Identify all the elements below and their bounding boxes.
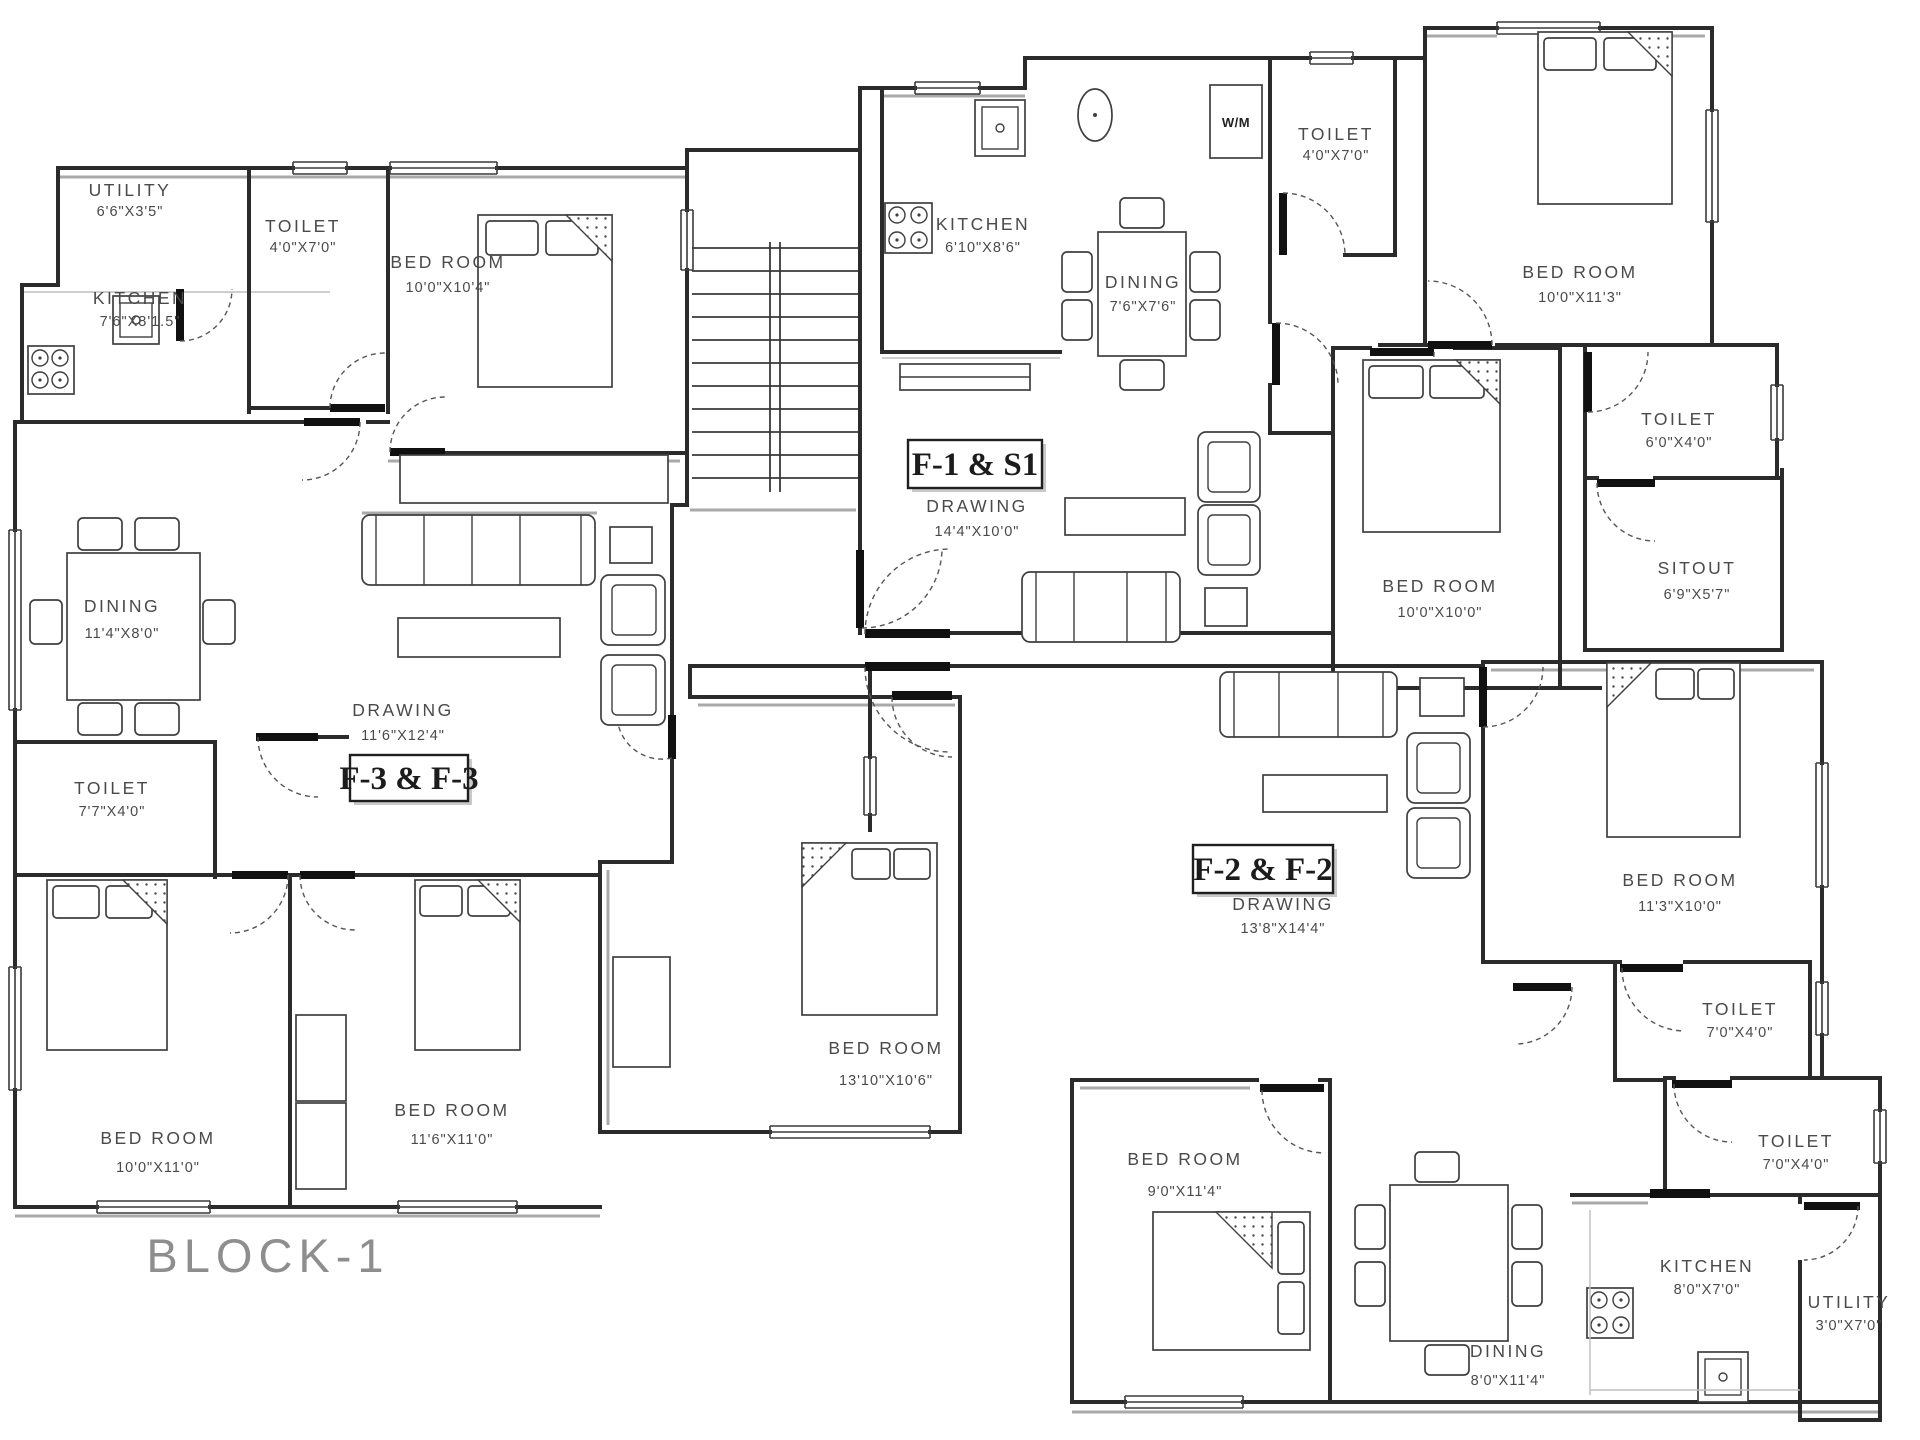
room-dims-drawing-f1: 14'4"X10'0" [935,524,1020,540]
room-dims-bedroom-f2-bm: 13'10"X10'6" [839,1073,933,1089]
stove-icon [1587,1288,1633,1338]
room-dims-toilet-f2-2: 7'0"X4'0" [1763,1157,1830,1173]
bed-icon [1607,663,1740,837]
door [1260,1084,1325,1153]
door [1650,1189,1710,1198]
unit-plate-f1: F-1 & S1 [908,440,1046,492]
cabinet-icon [400,455,668,503]
window [390,162,497,174]
door [1672,1080,1732,1142]
unit-label-f3: F-3 & F-3 [339,761,478,797]
room-label-toilet-f2-2: TOILET [1758,1131,1834,1151]
window [1706,110,1718,222]
stove-icon [28,346,74,394]
door [1279,193,1345,255]
room-label-bedroom-f2-r: BED ROOM [1622,870,1737,890]
room-dims-drawing-f3: 11'6"X12'4" [361,728,445,744]
door [1620,964,1685,1031]
bed-icon [802,843,937,1015]
floor-plan: UTILITY 6'6"X3'5" TOILET 4'0"X7'0" BED R… [0,0,1920,1440]
bed-icon [47,880,167,1050]
room-dims-bedroom-f2-b: 9'0"X11'4" [1148,1184,1223,1200]
door [230,871,288,933]
furniture [28,32,1800,1402]
room-label-wm: W/M [1222,115,1250,130]
sofa-icon [1407,733,1470,803]
unit-label-f1: F-1 & S1 [912,447,1039,483]
window [1771,385,1783,440]
room-label-utility-f3: UTILITY [89,180,172,200]
door [390,397,445,456]
room-label-dining-f2: DINING [1470,1341,1546,1361]
door [302,418,360,480]
sofa-icon [601,655,665,725]
room-dims-bedroom-f2-r: 11'3"X10'0" [1638,899,1722,915]
room-label-bedroom-f3-bm: BED ROOM [394,1100,509,1120]
room-label-utility-f2: UTILITY [1808,1292,1891,1312]
wardrobe-icon [613,957,670,1067]
stove-icon [885,203,932,253]
room-dims-bedroom-f3-bm: 11'6"X11'0" [411,1132,494,1148]
room-label-bedroom-f3-top: BED ROOM [390,252,505,272]
window [1816,763,1828,887]
tv-cabinet-icon [1065,498,1185,535]
room-dims-toilet-f1: 4'0"X7'0" [1303,148,1370,164]
room-dims-bedroom-f3-bl: 10'0"X11'0" [116,1160,200,1176]
bed-icon [1153,1212,1310,1350]
door [856,548,942,628]
room-label-bedroom-f1-tr: BED ROOM [1522,262,1637,282]
room-dims-kitchen-f2: 8'0"X7'0" [1674,1282,1741,1298]
window [9,967,21,1090]
room-dims-kitchen-f3: 7'6"X8'1.5" [100,314,181,330]
door [1272,323,1338,385]
window [1125,1396,1243,1408]
sofa-icon [1198,505,1260,575]
room-label-bedroom-f1-m: BED ROOM [1382,576,1497,596]
room-label-bedroom-f3-bl: BED ROOM [100,1128,215,1148]
unit-plate-f3: F-3 & F-3 [339,755,478,805]
door [892,691,952,757]
room-dims-toilet-f2-1: 7'0"X4'0" [1707,1025,1774,1041]
unit-plate-f2: F-2 & F-2 [1193,845,1337,897]
door [1513,983,1572,1044]
bed-icon [478,215,612,387]
room-label-toilet-f3-top: TOILET [265,216,341,236]
side-table-icon [610,527,652,563]
door [1804,1202,1860,1260]
door [865,549,950,638]
room-dims-dining-f3: 11'4"X8'0" [85,626,160,642]
door [1479,667,1543,727]
bed-icon [1363,360,1500,532]
kitchen-sink-icon [1698,1352,1748,1402]
room-label-toilet-f2-1: TOILET [1702,999,1778,1019]
room-dims-drawing-f2: 13'8"X14'4" [1241,921,1326,937]
window [915,82,980,94]
window [681,210,693,270]
floor-plan-svg: UTILITY 6'6"X3'5" TOILET 4'0"X7'0" BED R… [0,0,1920,1440]
kitchen-sink-icon [975,100,1025,156]
room-dims-sitout: 6'9"X5'7" [1664,587,1731,603]
tv-cabinet-icon [1263,775,1387,812]
room-label-toilet-f3-left: TOILET [74,778,150,798]
room-label-bedroom-f2-b: BED ROOM [1127,1149,1242,1169]
room-label-kitchen-f2: KITCHEN [1660,1256,1754,1276]
room-dims-utility-f2: 3'0"X7'0" [1816,1318,1883,1334]
room-label-bedroom-f2-bm: BED ROOM [828,1038,943,1058]
wash-basin-icon [1078,89,1112,141]
wardrobe-icon [296,1015,346,1189]
room-dims-bedroom-f1-tr: 10'0"X11'3" [1538,290,1622,306]
room-label-dining-f3: DINING [84,596,160,616]
window [9,530,21,710]
staircase [692,242,858,492]
door [1597,479,1655,541]
room-dims-toilet-f1-r: 6'0"X4'0" [1646,435,1713,451]
room-label-sitout: SITOUT [1658,558,1737,578]
room-dims-dining-f2: 8'0"X11'4" [1471,1373,1546,1389]
sofa-icon [1198,432,1260,502]
door [330,353,385,412]
room-label-kitchen-f3: KITCHEN [93,288,187,308]
door [300,871,355,930]
room-dims-bedroom-f1-m: 10'0"X10'0" [1398,605,1483,621]
window [398,1201,517,1213]
room-label-kitchen-f1: KITCHEN [936,214,1030,234]
side-table-icon [1205,588,1247,626]
room-dims-toilet-f3-top: 4'0"X7'0" [270,240,337,256]
room-dims-kitchen-f1: 6'10"X8'6" [945,240,1021,256]
window [97,1201,210,1213]
window [770,1126,930,1138]
side-table-icon [1420,678,1464,716]
room-dims-dining-f1: 7'6"X7'6" [1110,299,1177,315]
room-dims-toilet-f3-left: 7'7"X4'0" [79,804,146,820]
sofa-icon [601,575,665,645]
room-label-drawing-f1: DRAWING [926,496,1027,516]
window [1816,982,1828,1035]
door [1584,352,1648,412]
tv-cabinet-icon [398,618,560,657]
sofa-icon [1022,572,1180,642]
bed-icon [1538,32,1672,204]
sofa-icon [1220,672,1397,737]
room-label-toilet-f1: TOILET [1298,124,1374,144]
door [865,662,950,752]
room-label-toilet-f1-r: TOILET [1641,409,1717,429]
room-dims-utility-f3: 6'6"X3'5" [97,204,164,220]
room-label-drawing-f3: DRAWING [352,700,453,720]
sofa-icon [1407,808,1470,878]
sofa-icon [362,515,595,585]
door [1428,281,1492,349]
door [256,733,318,797]
window [1874,1110,1886,1163]
block-title: BLOCK-1 [146,1229,389,1282]
room-label-dining-f1: DINING [1105,272,1181,292]
serving-window [900,364,1030,390]
walls [15,28,1880,1420]
window [864,757,876,815]
dining-table-icon [1062,198,1220,390]
room-dims-bedroom-f3-top: 10'0"X10'4" [406,280,491,296]
window [1310,52,1353,64]
window [293,162,347,174]
bed-icon [415,880,520,1050]
unit-label-f2: F-2 & F-2 [1193,852,1332,888]
